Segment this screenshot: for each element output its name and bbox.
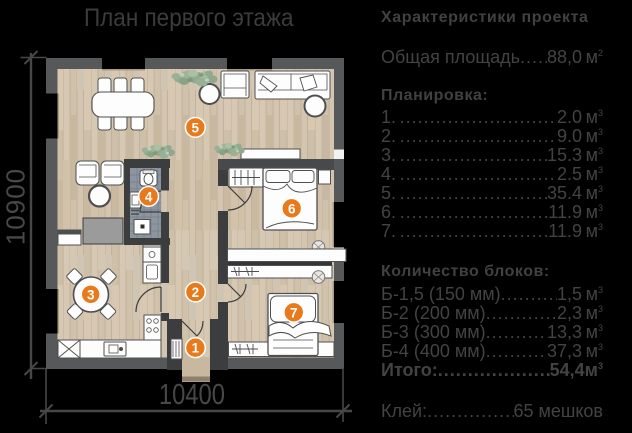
- svg-text:5: 5: [192, 120, 200, 135]
- svg-text:4: 4: [145, 189, 153, 204]
- svg-text:7: 7: [290, 305, 298, 320]
- svg-text:3: 3: [87, 287, 95, 302]
- svg-text:6: 6: [288, 201, 296, 216]
- svg-text:1: 1: [192, 341, 200, 356]
- svg-text:2: 2: [192, 285, 200, 300]
